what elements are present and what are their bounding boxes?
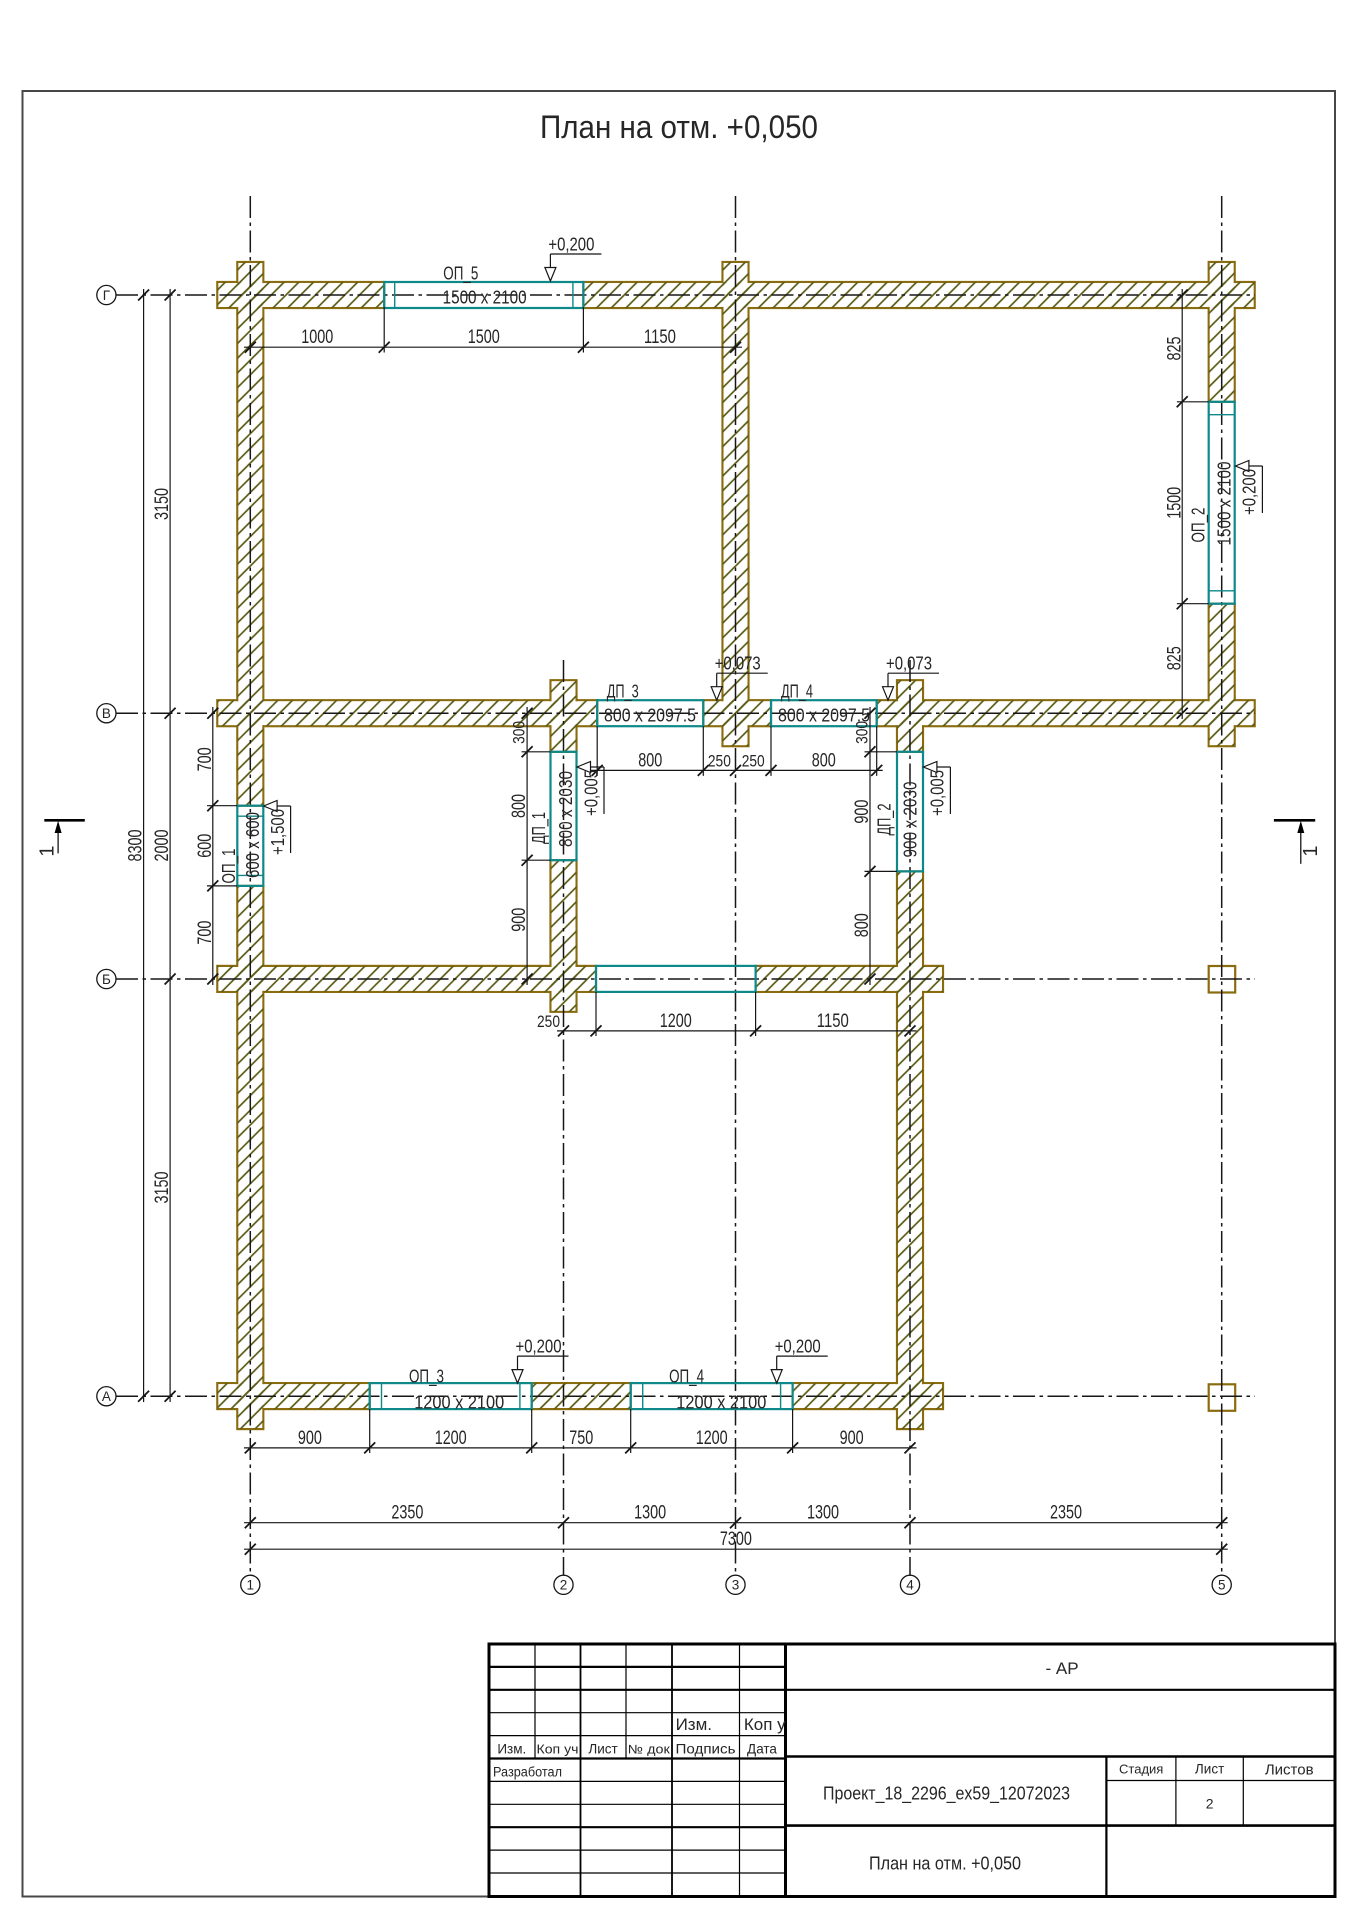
svg-text:Подпись: Подпись [676,1741,736,1756]
svg-text:Стадия: Стадия [1119,1761,1163,1776]
svg-text:750: 750 [569,1428,593,1449]
svg-text:2: 2 [1206,1795,1214,1811]
svg-text:1500: 1500 [468,327,500,348]
svg-text:600: 600 [195,834,216,858]
svg-text:5: 5 [1218,1578,1226,1593]
svg-text:2350: 2350 [391,1503,423,1524]
svg-text:1150: 1150 [817,1011,849,1032]
svg-text:2350: 2350 [1050,1503,1082,1524]
svg-text:В: В [102,706,111,721]
svg-text:900: 900 [840,1428,864,1449]
svg-text:Проект_18_2296_ex59_12072023: Проект_18_2296_ex59_12072023 [823,1784,1070,1805]
svg-text:700: 700 [195,747,216,771]
svg-text:1200: 1200 [660,1011,692,1032]
svg-text:Дата: Дата [747,1741,777,1756]
svg-text:Г: Г [103,288,111,303]
svg-text:Лист: Лист [588,1741,617,1756]
svg-text:Коп уч: Коп уч [537,1742,579,1756]
svg-text:1300: 1300 [634,1503,666,1524]
svg-text:Изм.: Изм. [676,1715,712,1734]
svg-text:Разработал: Разработал [493,1764,562,1779]
svg-text:1: 1 [1300,845,1322,856]
svg-text:+0,005: +0,005 [581,770,601,816]
svg-text:900: 900 [852,800,873,824]
svg-text:3150: 3150 [152,1172,173,1204]
svg-text:800: 800 [509,794,530,818]
svg-text:700: 700 [195,921,216,945]
svg-text:2: 2 [560,1578,568,1593]
svg-text:ОП_4: ОП_4 [669,1367,704,1388]
svg-text:3150: 3150 [152,488,173,520]
svg-text:900: 900 [509,908,530,932]
svg-text:ОП_5: ОП_5 [443,264,478,285]
svg-text:1150: 1150 [644,327,676,348]
svg-text:2000: 2000 [152,830,173,862]
svg-text:Листов: Листов [1265,1761,1314,1778]
svg-text:825: 825 [1164,646,1185,670]
svg-text:ОП_3: ОП_3 [409,1367,444,1388]
svg-text:+1,500: +1,500 [268,809,288,855]
svg-text:ДП_1: ДП_1 [529,812,550,844]
svg-text:800 x 2097.5: 800 x 2097.5 [604,706,696,726]
svg-text:300: 300 [510,721,529,744]
svg-text:3: 3 [732,1578,740,1593]
svg-text:+0,073: +0,073 [715,654,761,674]
svg-text:4: 4 [906,1578,914,1593]
svg-text:250: 250 [708,751,731,770]
svg-text:1000: 1000 [301,327,333,348]
svg-text:900 x 2030: 900 x 2030 [900,782,920,858]
svg-text:250: 250 [742,751,765,770]
svg-text:1200 x 2100: 1200 x 2100 [676,1393,766,1413]
svg-text:А: А [102,1389,111,1404]
svg-text:ОП_1: ОП_1 [219,849,240,884]
svg-text:План на отм. +0,050: План на отм. +0,050 [869,1853,1021,1874]
svg-text:1200: 1200 [435,1428,467,1449]
svg-text:800 x 2097.5: 800 x 2097.5 [778,706,870,726]
svg-text:Лист: Лист [1195,1761,1224,1776]
svg-text:800 x 2030: 800 x 2030 [556,771,576,847]
svg-text:1: 1 [247,1578,255,1593]
svg-text:800: 800 [638,750,662,771]
svg-text:ДП_3: ДП_3 [607,682,639,703]
svg-text:800: 800 [812,750,836,771]
svg-text:Изм.: Изм. [497,1741,526,1756]
svg-text:1500 x 2100: 1500 x 2100 [443,288,527,308]
svg-text:825: 825 [1164,337,1185,361]
svg-text:1: 1 [36,845,58,856]
svg-text:ДП_4: ДП_4 [781,682,813,703]
svg-text:№ док: № док [628,1742,671,1756]
svg-text:800: 800 [852,913,873,937]
svg-text:ДП_2: ДП_2 [874,804,895,836]
svg-text:+0,200: +0,200 [1240,469,1260,515]
svg-text:1300: 1300 [807,1503,839,1524]
svg-text:Коп у: Коп у [744,1715,786,1734]
svg-text:250: 250 [537,1012,560,1031]
svg-text:Б: Б [102,972,111,987]
svg-text:7300: 7300 [720,1529,752,1550]
svg-text:+0,200: +0,200 [775,1337,821,1357]
svg-text:8300: 8300 [126,830,147,862]
svg-text:+0,200: +0,200 [516,1337,562,1357]
svg-text:ОП_2: ОП_2 [1189,508,1210,543]
svg-text:План на отм. +0,050: План на отм. +0,050 [540,109,818,145]
svg-text:1500 x 2100: 1500 x 2100 [1214,462,1234,546]
svg-text:+0,200: +0,200 [548,235,594,255]
svg-text:1200: 1200 [696,1428,728,1449]
svg-text:900: 900 [298,1428,322,1449]
svg-text:1200 x 2100: 1200 x 2100 [414,1393,504,1413]
svg-text:+0,005: +0,005 [928,770,948,816]
svg-text:600 x 600: 600 x 600 [243,812,263,878]
svg-text:1500: 1500 [1164,487,1185,519]
svg-text:- АР: - АР [1045,1659,1078,1678]
svg-text:+0,073: +0,073 [886,654,932,674]
